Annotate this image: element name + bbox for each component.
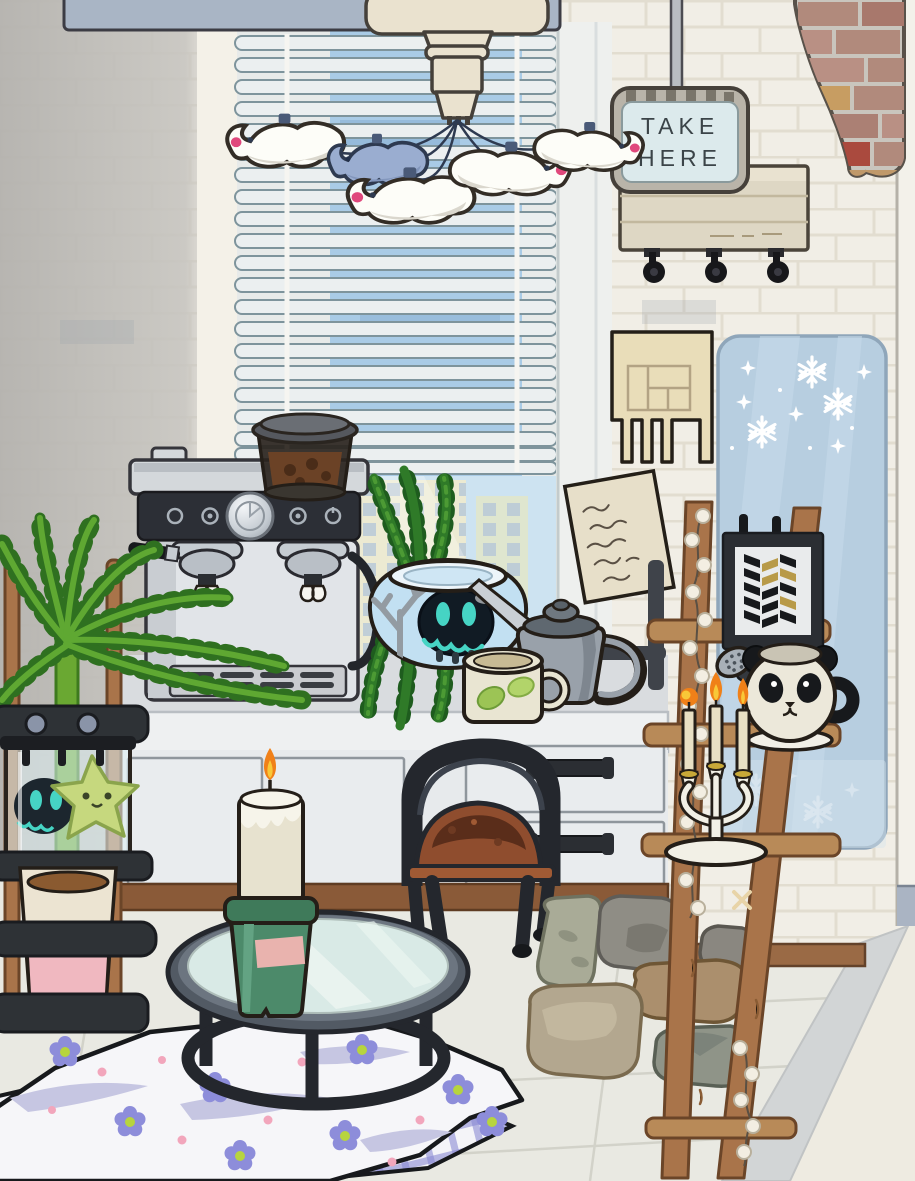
pillar-candle	[239, 790, 303, 902]
beak	[231, 137, 242, 147]
sign-text-line2: HERE	[638, 145, 722, 171]
terrarium[interactable]	[0, 736, 138, 858]
sign-text-line1: TAKE	[641, 113, 719, 139]
pot-label	[255, 936, 305, 968]
rock-green-gray[interactable]	[538, 896, 601, 989]
right-baseboard	[897, 886, 915, 926]
chevron-art-frame[interactable]	[723, 514, 823, 649]
bean-hopper[interactable]	[253, 414, 357, 500]
sign-pole	[671, 0, 682, 96]
green-pot	[225, 898, 317, 1016]
game-room-scene: TAKE HERE	[0, 0, 915, 1181]
ladder-rung-bottom	[646, 1118, 796, 1138]
